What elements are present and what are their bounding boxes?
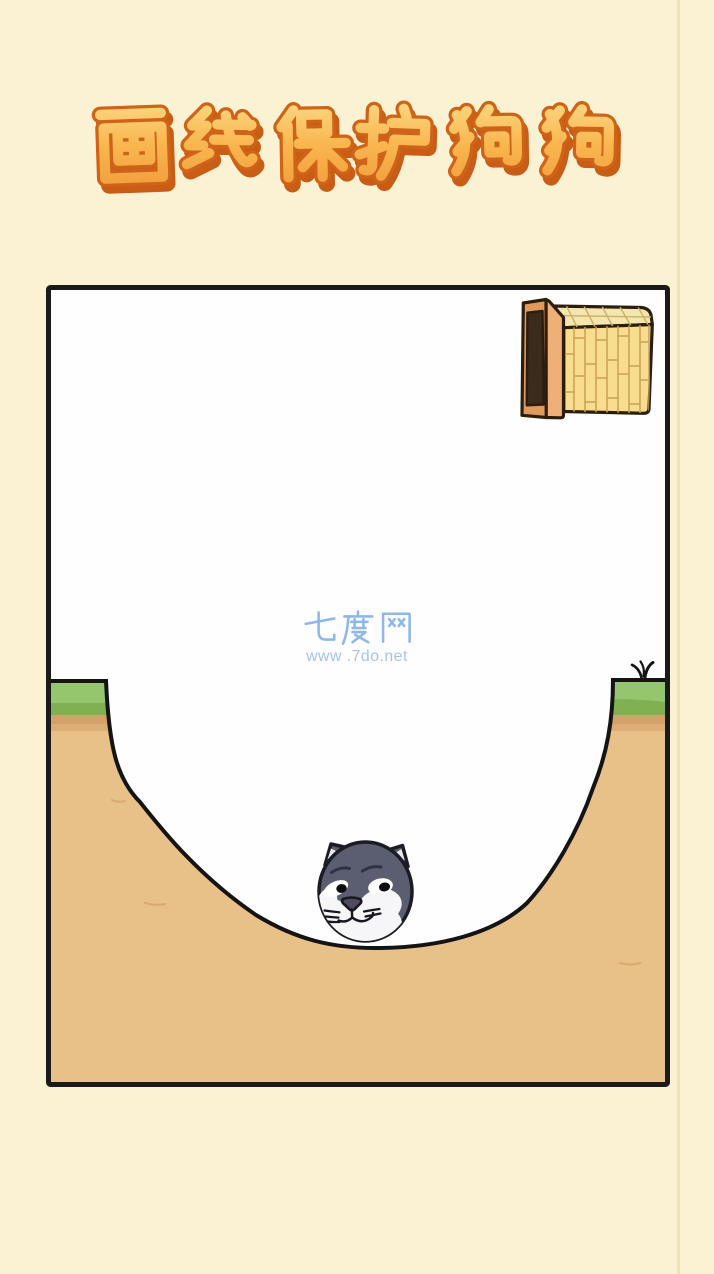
svg-text:www .7do.net: www .7do.net [305, 648, 408, 665]
